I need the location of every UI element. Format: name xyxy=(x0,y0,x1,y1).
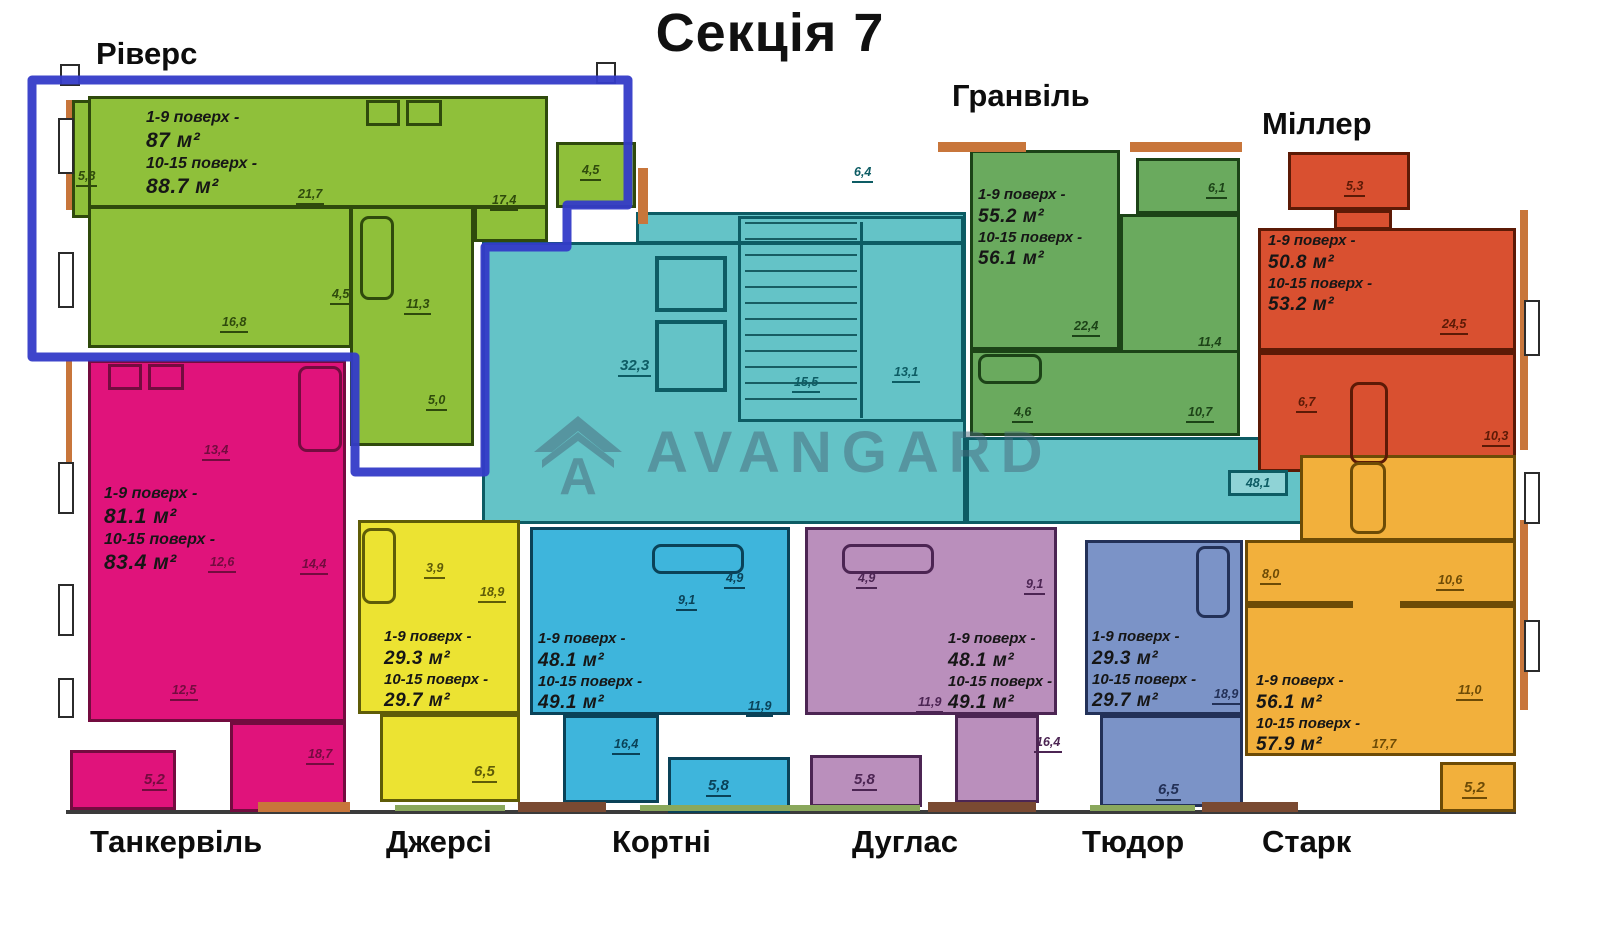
dim-label: 6,4 xyxy=(852,166,873,183)
dim-label: 11,4 xyxy=(1196,336,1223,353)
granville-area-stats: 1-9 поверх - 55.2 м² 10-15 поверх - 56.1… xyxy=(978,186,1082,271)
dim-label: 6,1 xyxy=(1206,182,1227,199)
dim-label: 16,4 xyxy=(612,738,640,755)
apartment-name-rivers: Ріверс xyxy=(96,36,197,72)
area-value: 81.1 м² xyxy=(104,504,215,530)
dim-label: 10,6 xyxy=(1436,574,1464,591)
floors-range: 1-9 поверх - xyxy=(1092,628,1196,647)
window xyxy=(58,118,74,174)
dim-label: 11,0 xyxy=(1456,684,1483,701)
dim-label: 18,9 xyxy=(1212,688,1240,705)
stark-room xyxy=(1300,455,1516,541)
dim-label: 4,9 xyxy=(856,572,877,589)
dim-label: 5,8 xyxy=(852,772,877,791)
dim-label: 6,5 xyxy=(472,764,497,783)
wall-accent xyxy=(1130,142,1242,152)
dim-label: 9,1 xyxy=(676,594,697,611)
dim-label: 14,4 xyxy=(300,558,328,575)
window xyxy=(1524,300,1540,356)
floors-range: 1-9 поверх - xyxy=(978,186,1082,205)
courtney-area-stats: 1-9 поверх - 48.1 м² 10-15 поверх - 49.1… xyxy=(538,630,642,715)
dim-label: 15,5 xyxy=(792,376,820,393)
area-value: 29.7 м² xyxy=(1092,689,1196,713)
bathtub-icon xyxy=(1196,546,1230,618)
area-value: 88.7 м² xyxy=(146,174,257,200)
dim-label: 4,5 xyxy=(330,288,351,305)
dim-label: 5,8 xyxy=(76,170,97,187)
miller-room xyxy=(1334,210,1392,230)
apartment-name-jersey: Джерсі xyxy=(386,824,492,860)
floors-range: 1-9 поверх - xyxy=(104,484,215,504)
floors-range: 10-15 поверх - xyxy=(1256,715,1360,734)
interior-wall xyxy=(1245,601,1353,608)
wall-accent xyxy=(1202,802,1298,812)
dim-label: 13,4 xyxy=(202,444,230,461)
apartment-name-douglas: Дуглас xyxy=(852,824,958,860)
floors-range: 10-15 поверх - xyxy=(1092,671,1196,690)
dim-label: 12,5 xyxy=(170,684,198,701)
area-value: 48.1 м² xyxy=(948,649,1052,673)
stark-area-stats: 1-9 поверх - 56.1 м² 10-15 поверх - 57.9… xyxy=(1256,672,1360,757)
area-value: 57.9 м² xyxy=(1256,733,1360,757)
area-value: 56.1 м² xyxy=(978,247,1082,271)
wall-accent xyxy=(258,802,350,812)
apartment-name-tudor: Тюдор xyxy=(1082,824,1184,860)
dim-label: 16,4 xyxy=(1034,736,1062,753)
bathtub-icon xyxy=(360,216,394,300)
floors-range: 10-15 поверх - xyxy=(104,530,215,550)
dim-label: 6,7 xyxy=(1296,396,1317,413)
floors-range: 1-9 поверх - xyxy=(1268,232,1372,251)
wall-accent xyxy=(1090,805,1195,811)
tudor-area-stats: 1-9 поверх - 29.3 м² 10-15 поверх - 29.7… xyxy=(1092,628,1196,713)
area-value: 29.7 м² xyxy=(384,689,488,713)
dim-label: 18,9 xyxy=(478,586,506,603)
dim-label: 16,8 xyxy=(220,316,248,333)
apartment-name-granville: Гранвіль xyxy=(952,78,1090,114)
dim-label: 4,5 xyxy=(580,164,601,181)
dim-label: 3,9 xyxy=(424,562,445,579)
area-value: 56.1 м² xyxy=(1256,691,1360,715)
wall-accent xyxy=(518,802,606,812)
interior-wall xyxy=(1400,601,1516,608)
dim-label: 11,3 xyxy=(404,298,431,315)
dim-label: 10,3 xyxy=(1482,430,1510,447)
wall-accent xyxy=(938,142,1026,152)
dim-label: 5,8 xyxy=(706,778,731,797)
window xyxy=(58,584,74,636)
kitchen-sink-icon xyxy=(406,100,442,126)
floors-range: 10-15 поверх - xyxy=(146,154,257,174)
floors-range: 1-9 поверх - xyxy=(538,630,642,649)
jersey-balcony xyxy=(380,714,520,802)
section-title: Секція 7 xyxy=(600,2,940,64)
dim-label: 24,5 xyxy=(1440,318,1468,335)
wall-accent xyxy=(638,168,648,224)
dim-label: 32,3 xyxy=(618,358,651,377)
window xyxy=(60,64,80,86)
bathtub-icon xyxy=(1350,382,1388,464)
corridor-area-badge: 48,1 xyxy=(1228,470,1288,496)
bathtub-icon xyxy=(842,544,934,574)
dim-label: 6,5 xyxy=(1156,782,1181,801)
dim-label: 18,7 xyxy=(306,748,334,765)
dim-label: 9,1 xyxy=(1024,578,1045,595)
bathtub-icon xyxy=(978,354,1042,384)
area-value: 49.1 м² xyxy=(538,691,642,715)
area-value: 55.2 м² xyxy=(978,205,1082,229)
dim-label: 11,9 xyxy=(746,700,773,717)
window xyxy=(1524,472,1540,524)
wall-accent xyxy=(1520,520,1528,710)
elevator-shaft xyxy=(655,256,727,312)
stairs-divider xyxy=(860,222,863,418)
area-value: 53.2 м² xyxy=(1268,293,1372,317)
dim-label: 5,2 xyxy=(142,772,167,791)
miller-area-stats: 1-9 поверх - 50.8 м² 10-15 поверх - 53.2… xyxy=(1268,232,1372,317)
window xyxy=(58,462,74,514)
wall-accent xyxy=(395,805,505,811)
window xyxy=(58,252,74,308)
watermark: A AVANGARD xyxy=(528,408,1053,496)
bathtub-icon xyxy=(1350,462,1386,534)
kitchen-stove-icon xyxy=(108,364,142,390)
floors-range: 1-9 поверх - xyxy=(146,108,257,128)
dim-label: 5,0 xyxy=(426,394,447,411)
floors-range: 10-15 поверх - xyxy=(384,671,488,690)
floors-range: 1-9 поверх - xyxy=(948,630,1052,649)
interior-wall xyxy=(1258,348,1516,355)
douglas-area-stats: 1-9 поверх - 48.1 м² 10-15 поверх - 49.1… xyxy=(948,630,1052,715)
svg-text:A: A xyxy=(559,448,597,496)
floors-range: 10-15 поверх - xyxy=(1268,275,1372,294)
dim-label: 11,9 xyxy=(916,696,943,713)
watermark-text: AVANGARD xyxy=(646,419,1053,486)
dim-label: 22,4 xyxy=(1072,320,1100,337)
dim-label: 5,3 xyxy=(1344,180,1365,197)
tankerville-area-stats: 1-9 поверх - 81.1 м² 10-15 поверх - 83.4… xyxy=(104,484,215,577)
window xyxy=(58,678,74,718)
kitchen-sink-icon xyxy=(148,364,184,390)
area-value: 87 м² xyxy=(146,128,257,154)
wall-accent xyxy=(928,802,1036,812)
dim-label: 21,7 xyxy=(296,188,324,205)
floors-range: 10-15 поверх - xyxy=(538,673,642,692)
bathtub-icon xyxy=(298,366,342,452)
floors-range: 10-15 поверх - xyxy=(948,673,1052,692)
floors-range: 10-15 поверх - xyxy=(978,229,1082,248)
window xyxy=(1524,620,1540,672)
tankerville-room xyxy=(230,722,346,812)
rivers-area-stats: 1-9 поверх - 87 м² 10-15 поверх - 88.7 м… xyxy=(146,108,257,201)
dim-label: 13,1 xyxy=(892,366,920,383)
dim-label: 17,7 xyxy=(1370,738,1398,755)
dim-label: 4,9 xyxy=(724,572,745,589)
kitchen-stove-icon xyxy=(366,100,400,126)
rivers-room xyxy=(474,206,548,242)
jersey-area-stats: 1-9 поверх - 29.3 м² 10-15 поверх - 29.7… xyxy=(384,628,488,713)
area-value: 29.3 м² xyxy=(1092,647,1196,671)
avangard-logo-icon: A xyxy=(528,408,628,496)
dim-label: 8,0 xyxy=(1260,568,1281,585)
window xyxy=(596,62,616,84)
courtney-room xyxy=(563,715,659,803)
floors-range: 1-9 поверх - xyxy=(384,628,488,647)
floor-plan-canvas: Секція 7 Ріверс Гранвіль Міллер Танкерві… xyxy=(0,0,1600,932)
area-value: 49.1 м² xyxy=(948,691,1052,715)
wall-accent xyxy=(640,805,920,811)
dim-label: 10,7 xyxy=(1186,406,1214,423)
apartment-name-stark: Старк xyxy=(1262,824,1351,860)
area-value: 29.3 м² xyxy=(384,647,488,671)
dim-label: 17,4 xyxy=(490,194,518,211)
apartment-name-courtney: Кортні xyxy=(612,824,711,860)
elevator-shaft xyxy=(655,320,727,392)
apartment-name-miller: Міллер xyxy=(1262,106,1372,142)
area-value: 50.8 м² xyxy=(1268,251,1372,275)
bathtub-icon xyxy=(362,528,396,604)
apartment-name-tankerville: Танкервіль xyxy=(90,824,262,860)
area-value: 48.1 м² xyxy=(538,649,642,673)
douglas-room xyxy=(955,715,1039,803)
bathtub-icon xyxy=(652,544,744,574)
floors-range: 1-9 поверх - xyxy=(1256,672,1360,691)
dim-label: 5,2 xyxy=(1462,780,1487,799)
area-value: 83.4 м² xyxy=(104,550,215,576)
